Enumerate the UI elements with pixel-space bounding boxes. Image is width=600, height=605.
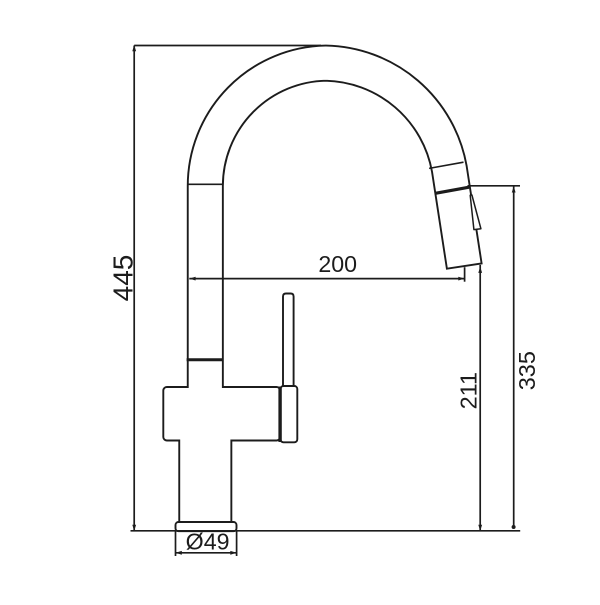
svg-text:200: 200 xyxy=(318,251,357,277)
svg-text:335: 335 xyxy=(514,351,540,390)
svg-text:Ø49: Ø49 xyxy=(186,529,230,555)
svg-text:445: 445 xyxy=(107,255,138,302)
svg-text:211: 211 xyxy=(455,372,481,409)
